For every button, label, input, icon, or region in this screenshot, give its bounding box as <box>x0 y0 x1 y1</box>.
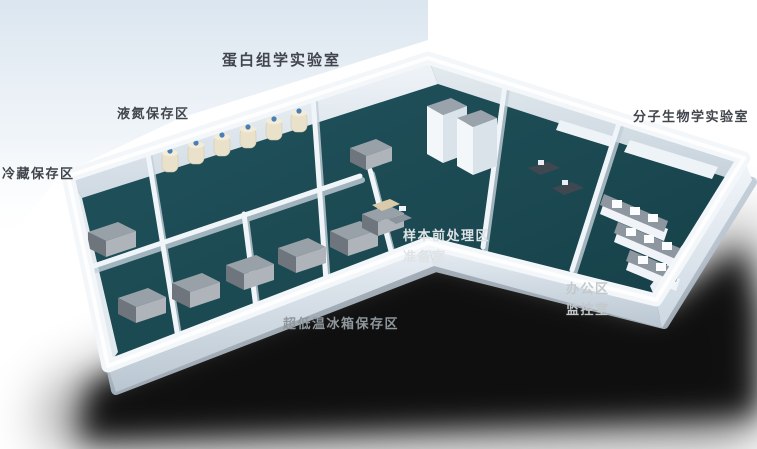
label-ult-freezer-area: 超低温冰箱保存区 <box>283 318 399 331</box>
label-sample-pretreatment-area: 样本前处理区 <box>403 230 490 243</box>
lab-3d-floorplan: 蛋白组学实验室 液氮保存区 冷藏保存区 分子生物学实验室 样本前处理区 准备室 … <box>0 0 757 449</box>
nitrogen-dewar <box>188 140 204 164</box>
floorplan-render <box>0 0 757 449</box>
label-prep-room: 准备室 <box>403 251 447 264</box>
label-office-area: 办公区 <box>566 283 610 296</box>
storage-cabinet <box>457 110 497 175</box>
label-liquid-nitrogen-area: 液氮保存区 <box>117 108 190 121</box>
label-monitoring-room: 监控室 <box>566 304 610 317</box>
nitrogen-dewar <box>240 124 256 148</box>
label-molecular-biology-lab: 分子生物学实验室 <box>633 111 749 124</box>
nitrogen-dewar <box>214 132 230 156</box>
nitrogen-dewar <box>291 108 307 132</box>
label-cold-storage-area: 冷藏保存区 <box>2 168 75 181</box>
nitrogen-dewar <box>162 148 178 172</box>
label-proteomics-lab: 蛋白组学实验室 <box>222 53 341 68</box>
nitrogen-dewar <box>266 116 282 140</box>
